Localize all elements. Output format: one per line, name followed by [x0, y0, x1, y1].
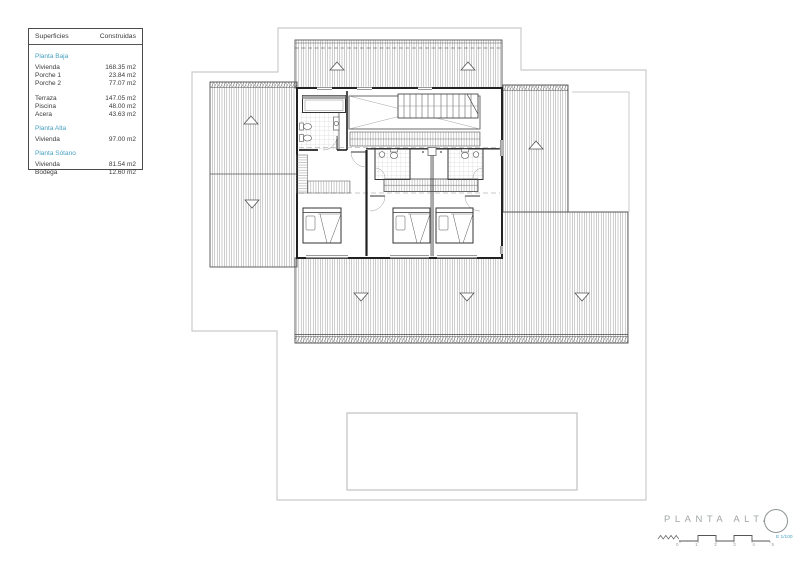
legend-section-title: Planta Alta: [35, 125, 136, 133]
graphic-scale-bar: 0 1 2 3 4 5 E 1/100: [656, 532, 800, 552]
legend-col-built: Construidas: [100, 33, 136, 41]
bed: [303, 208, 341, 243]
legend-col-surfaces: Superficies: [35, 33, 69, 41]
drawing-sheet: Superficies Construidas Planta Baja Vivi…: [0, 0, 800, 566]
legend-row: Bodega 12.60 m2: [35, 169, 136, 177]
staircase: [398, 94, 478, 118]
scale-ratio-label: E 1/100: [776, 535, 793, 540]
legend-row: Terraza 147.05 m2: [35, 95, 136, 103]
surfaces-legend: Superficies Construidas Planta Baja Vivi…: [28, 28, 143, 170]
bidet: [300, 135, 312, 142]
bed: [436, 208, 473, 243]
legend-section-title: Planta Baja: [35, 53, 136, 61]
roof-top: [295, 40, 502, 88]
sink: [334, 117, 340, 130]
pool-outline: [347, 413, 577, 490]
legend-row: Piscina 48.00 m2: [35, 103, 136, 111]
gallery-shelf: [350, 132, 480, 146]
legend-row: Porche 1 23.84 m2: [35, 72, 136, 80]
wardrobe-strip: [384, 179, 478, 192]
window: [306, 255, 477, 258]
roof-left-wing: [210, 82, 297, 267]
toilet: [390, 149, 397, 159]
legend-row: Porche 2 77.07 m2: [35, 80, 136, 88]
bathroom-mid-left: [375, 149, 410, 180]
legend-header: Superficies Construidas: [29, 29, 142, 45]
legend-row: Vivienda 81.54 m2: [35, 161, 136, 169]
bathtub: [303, 96, 346, 113]
legend-row: Vivienda 97.00 m2: [35, 136, 136, 144]
bathroom-mid-right: [448, 149, 483, 180]
roof-right-wing: [503, 85, 568, 212]
legend-section-title: Planta Sótano: [35, 150, 136, 158]
revision-circle: [764, 509, 788, 533]
scale-tick-numbers: 0 1 2 3 4 5: [676, 542, 774, 547]
sink: [379, 152, 385, 158]
sink: [473, 152, 479, 158]
legend-row: Acera 43.63 m2: [35, 111, 136, 119]
page-title: PLANTA ALTA: [664, 514, 774, 525]
bed: [393, 208, 430, 243]
legend-row: Vivienda 168.35 m2: [35, 64, 136, 72]
toilet: [300, 123, 312, 130]
toilet: [461, 149, 468, 159]
